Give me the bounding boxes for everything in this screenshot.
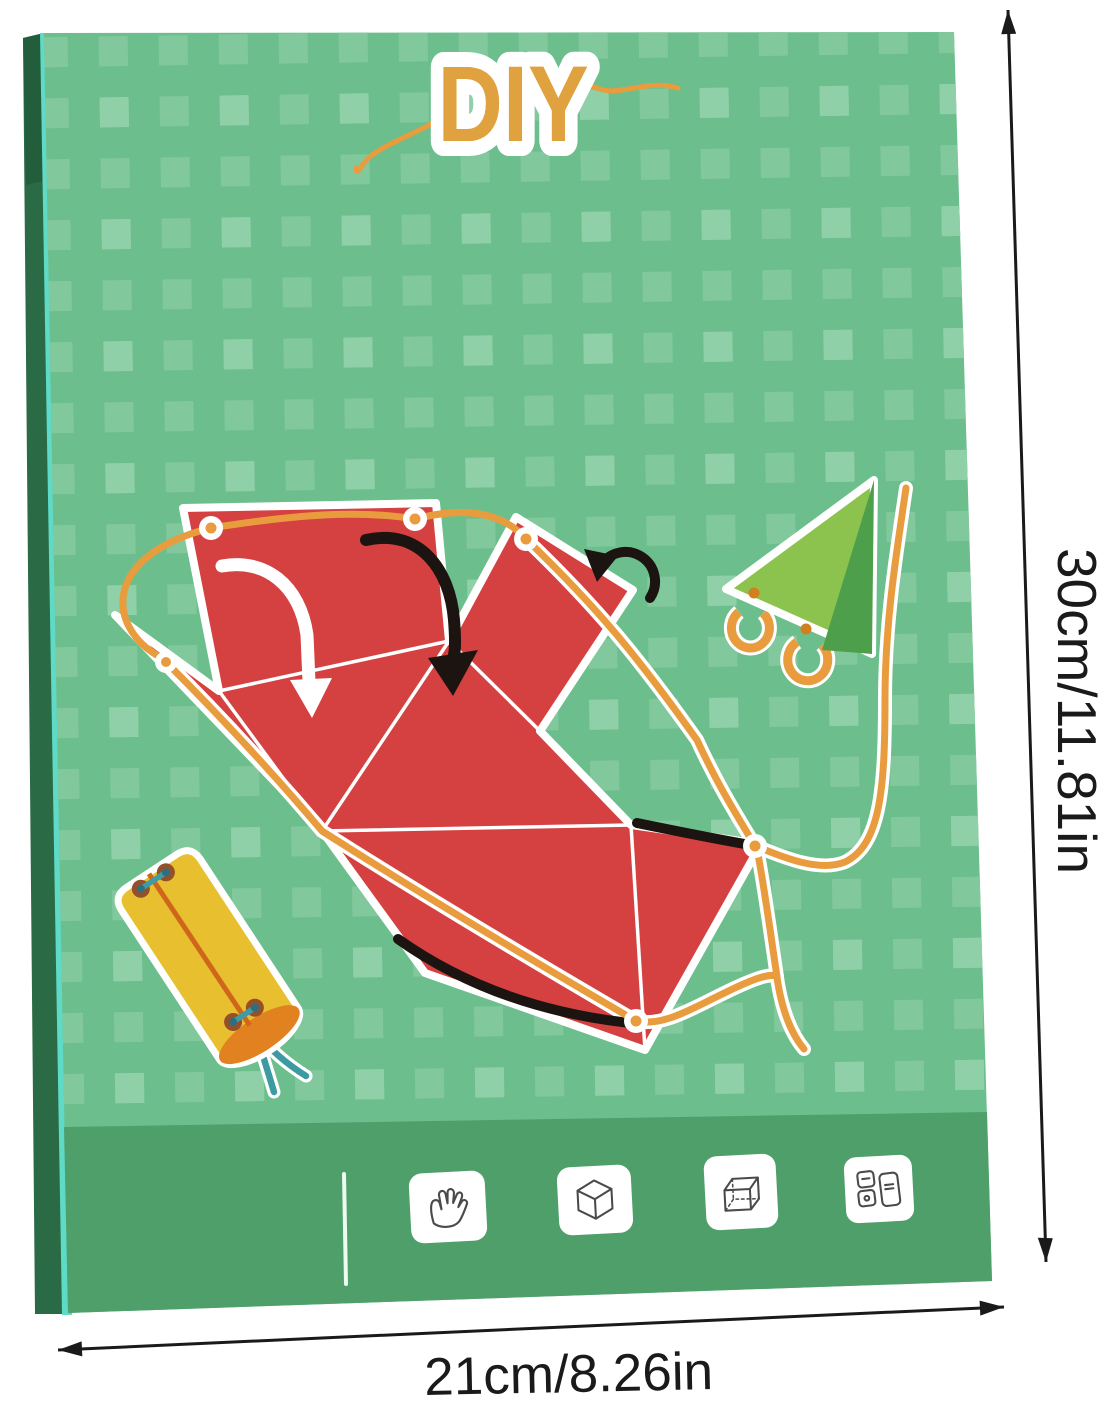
svg-text:21cm/8.26in: 21cm/8.26in [424, 1342, 714, 1402]
svg-text:30cm/11.81in: 30cm/11.81in [1046, 548, 1103, 874]
svg-text:DIY: DIY [437, 45, 588, 165]
